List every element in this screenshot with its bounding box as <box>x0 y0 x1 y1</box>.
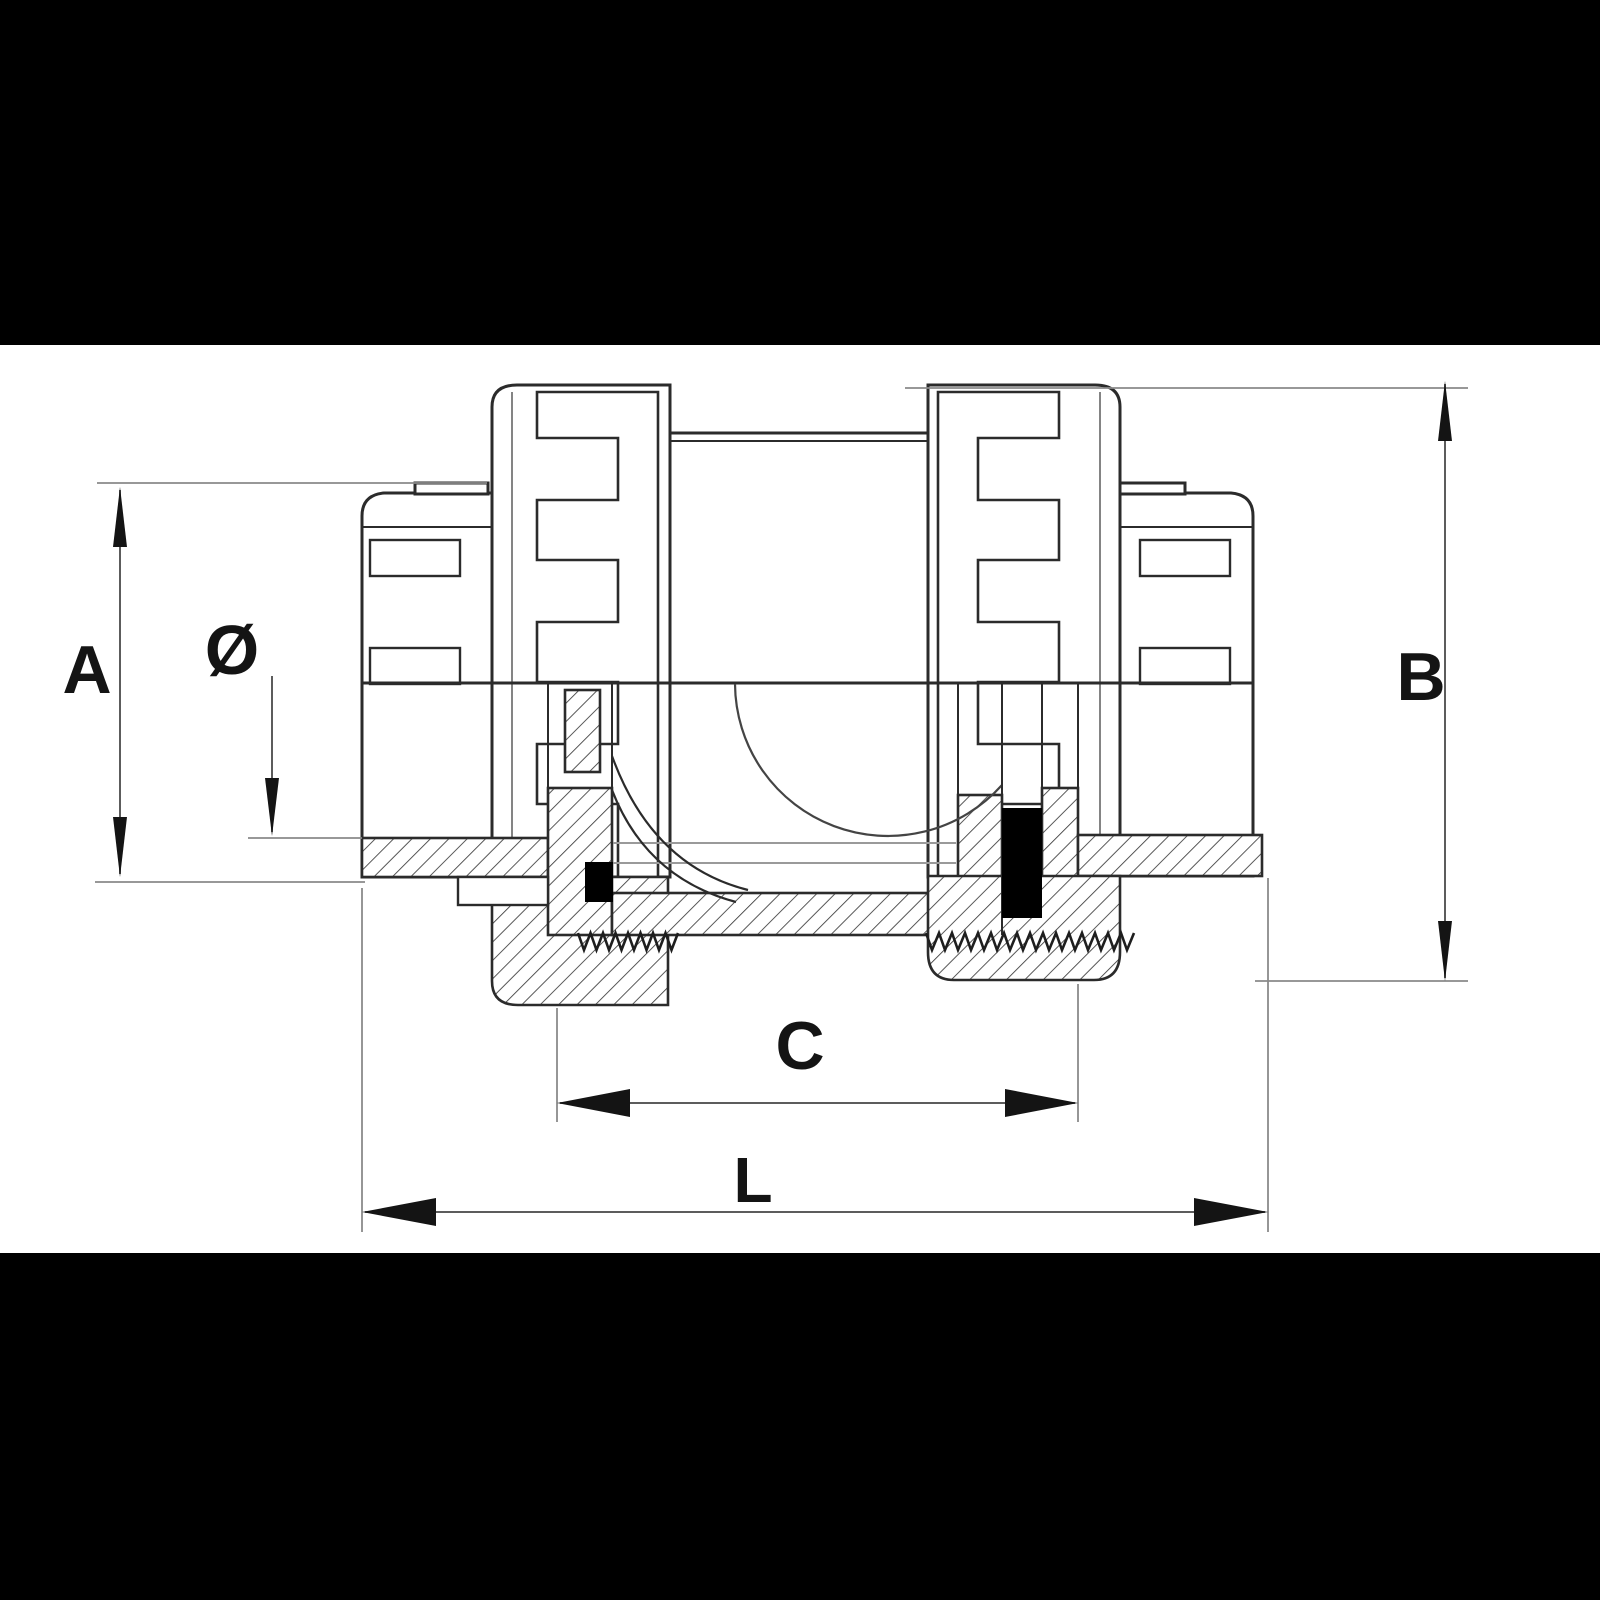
left-flange-lip <box>458 877 548 905</box>
dimension-label-l: L <box>733 1148 772 1212</box>
right-seal <box>1002 808 1042 918</box>
left-seal <box>585 862 613 902</box>
dimension-label-b: B <box>1396 643 1445 711</box>
left-upper-wall-section <box>565 690 600 772</box>
left-flange-section <box>362 838 548 877</box>
dimension-label-c: C <box>775 1012 824 1080</box>
right-pipe-end <box>1112 483 1253 876</box>
valve-body <box>670 433 928 683</box>
dimension-label-diameter: Ø <box>205 615 259 685</box>
valve-technical-drawing <box>0 0 1600 1600</box>
left-seat-section <box>548 788 612 935</box>
screenshot-stage: A Ø B C L <box>0 0 1600 1600</box>
right-flange-section <box>1078 835 1262 876</box>
dimension-label-a: A <box>62 636 111 704</box>
